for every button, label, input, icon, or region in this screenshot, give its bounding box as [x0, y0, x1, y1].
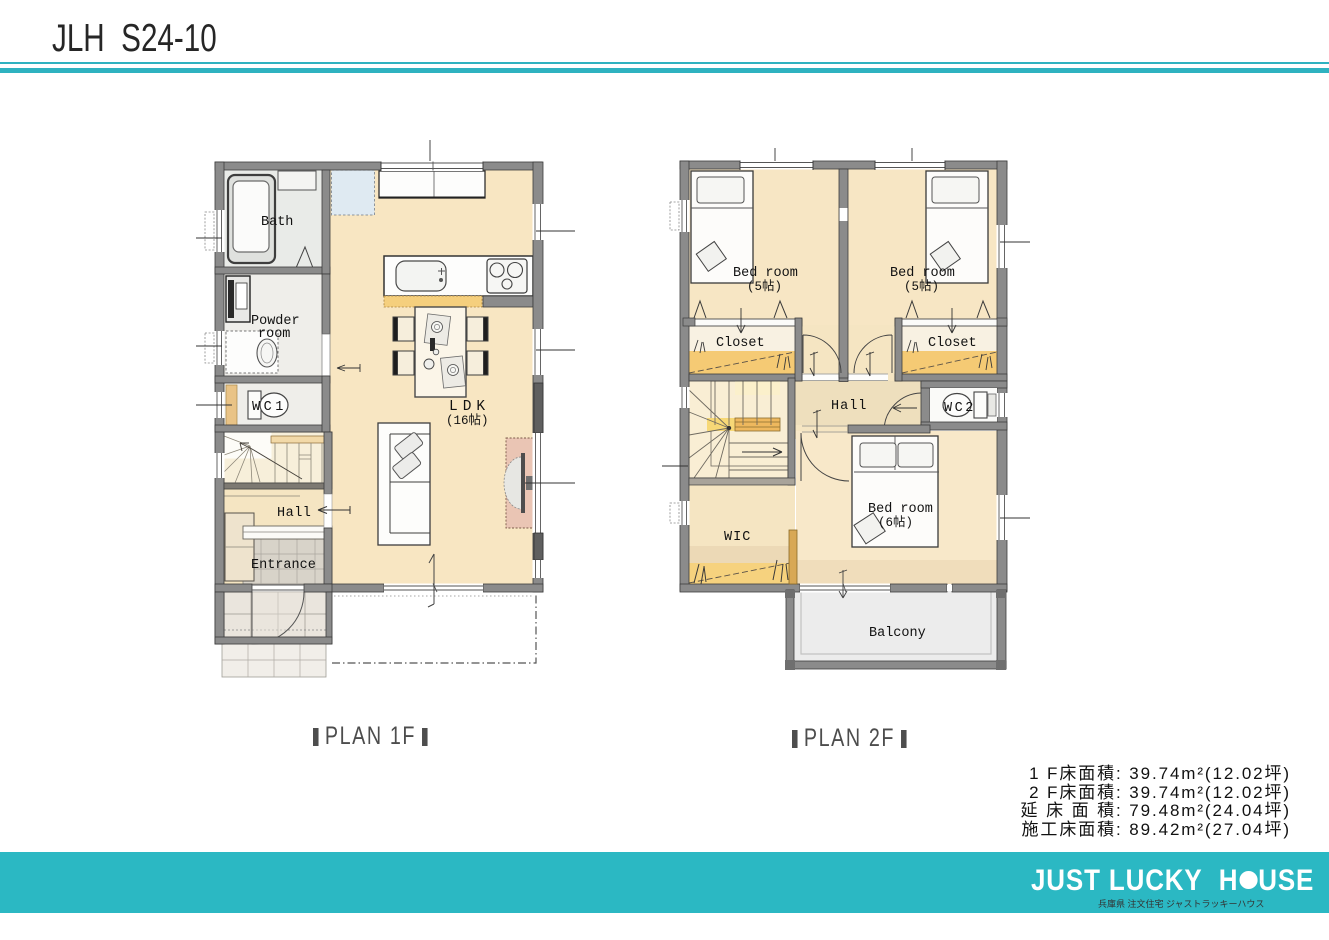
svg-text:WC2: WC2 — [944, 401, 976, 416]
svg-text:room: room — [258, 327, 290, 342]
svg-text:WIC: WIC — [724, 530, 751, 545]
svg-text:(5帖): (5帖) — [747, 278, 782, 294]
svg-text:Entrance: Entrance — [251, 558, 316, 573]
svg-text:Closet: Closet — [928, 336, 977, 351]
svg-text:(6帖): (6帖) — [878, 514, 913, 530]
svg-text:Bath: Bath — [261, 215, 293, 230]
svg-text:Hall: Hall — [831, 399, 867, 414]
svg-text:Closet: Closet — [716, 336, 765, 351]
svg-text:Balcony: Balcony — [869, 626, 926, 641]
svg-text:LDK: LDK — [449, 399, 490, 415]
svg-text:(5帖): (5帖) — [904, 278, 939, 294]
svg-text:Bed room: Bed room — [733, 266, 798, 281]
svg-text:Bed room: Bed room — [868, 502, 933, 517]
svg-text:Bed room: Bed room — [890, 266, 955, 281]
svg-text:(16帖): (16帖) — [446, 412, 489, 428]
svg-text:WC1: WC1 — [252, 400, 287, 415]
svg-text:Hall: Hall — [277, 506, 311, 521]
